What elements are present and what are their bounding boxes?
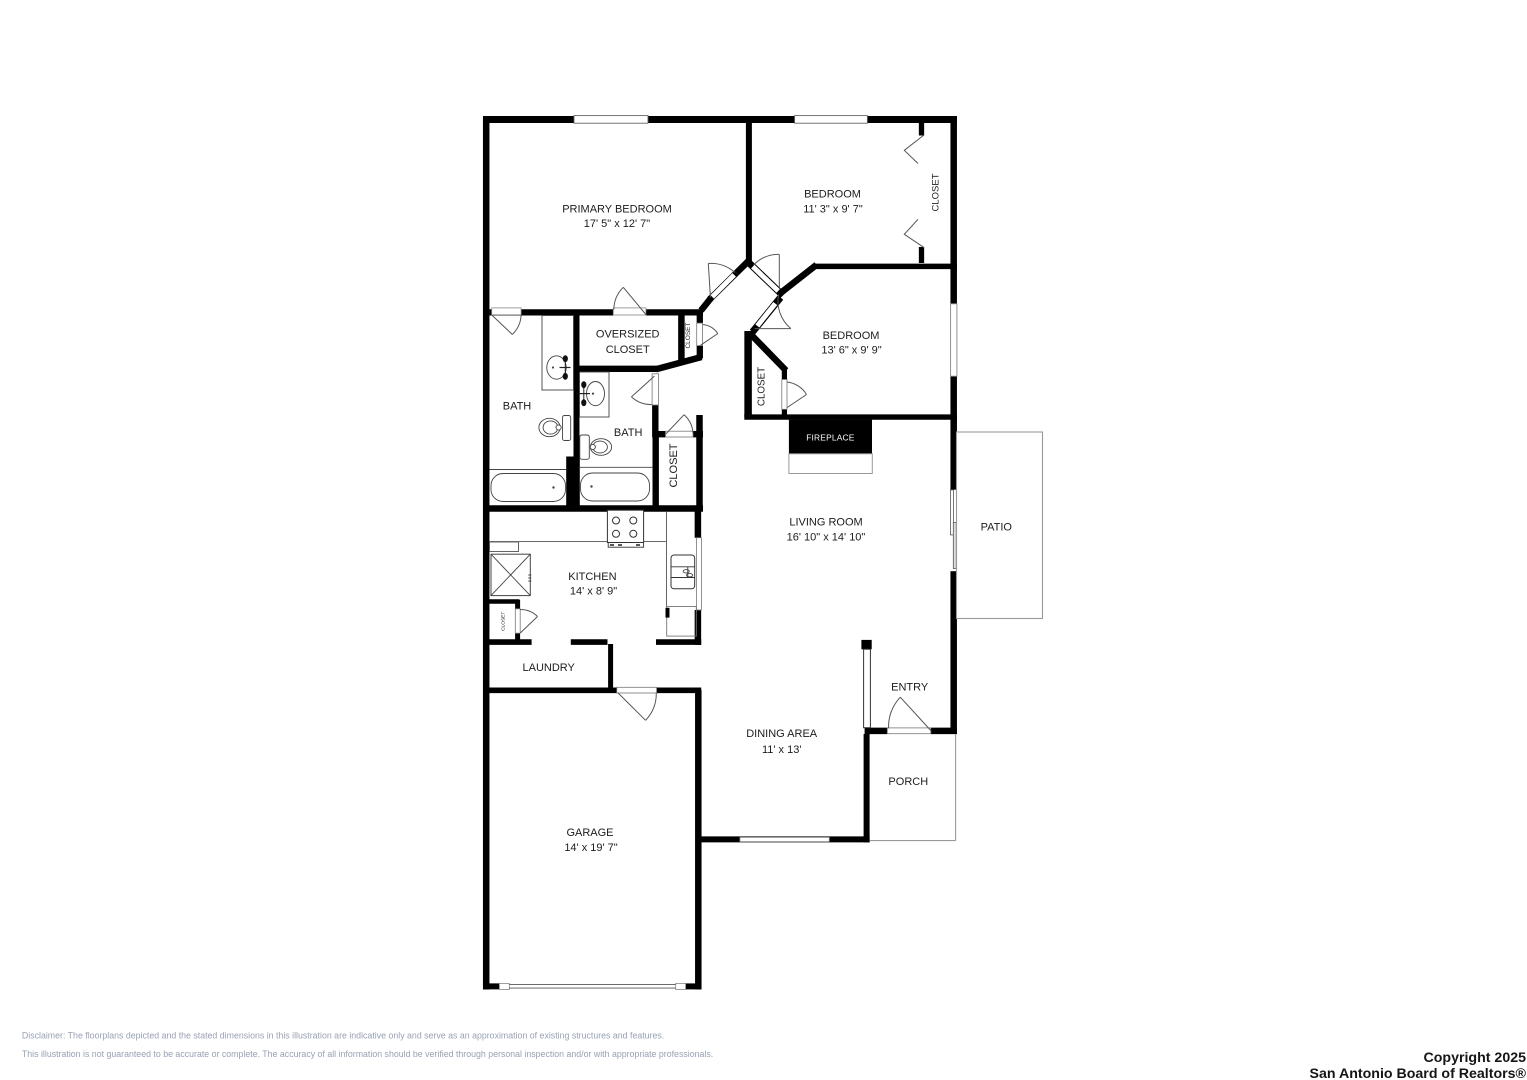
svg-text:CLOSET: CLOSET xyxy=(931,173,942,211)
svg-text:DINING AREA: DINING AREA xyxy=(746,728,818,740)
svg-text:CLOSET: CLOSET xyxy=(685,322,692,348)
svg-text:BEDROOM: BEDROOM xyxy=(823,330,880,342)
svg-text:17' 5" x 12' 7": 17' 5" x 12' 7" xyxy=(584,218,651,230)
svg-text:13' 6" x 9' 9": 13' 6" x 9' 9" xyxy=(821,345,881,357)
svg-text:CLOSET: CLOSET xyxy=(668,443,680,487)
svg-text:ENTRY: ENTRY xyxy=(891,681,929,693)
svg-text:LIVING ROOM: LIVING ROOM xyxy=(789,516,862,528)
svg-text:11' x 13': 11' x 13' xyxy=(762,744,801,756)
svg-text:OVERSIZED: OVERSIZED xyxy=(596,329,660,341)
svg-text:Copyright 2025: Copyright 2025 xyxy=(1424,1050,1527,1066)
svg-text:BATH: BATH xyxy=(503,400,532,412)
svg-text:16' 10" x 14' 10": 16' 10" x 14' 10" xyxy=(787,532,866,544)
svg-text:This illustration is not guara: This illustration is not guaranteed to b… xyxy=(22,1049,713,1059)
svg-text:CLOSET: CLOSET xyxy=(756,367,767,406)
svg-text:14' x 8' 9": 14' x 8' 9" xyxy=(570,586,617,598)
svg-text:Disclaimer: The floorplans dep: Disclaimer: The floorplans depicted and … xyxy=(22,1030,664,1040)
svg-text:PORCH: PORCH xyxy=(888,776,928,788)
svg-text:BEDROOM: BEDROOM xyxy=(804,189,861,201)
svg-text:11' 3" x 9' 7": 11' 3" x 9' 7" xyxy=(803,203,863,215)
svg-text:PATIO: PATIO xyxy=(981,522,1013,534)
svg-text:CLOSET: CLOSET xyxy=(606,344,650,356)
svg-text:PRIMARY BEDROOM: PRIMARY BEDROOM xyxy=(562,204,672,216)
svg-text:14' x 19' 7": 14' x 19' 7" xyxy=(564,842,617,854)
svg-text:FIREPLACE: FIREPLACE xyxy=(806,433,855,443)
svg-text:CLOSET: CLOSET xyxy=(500,612,506,631)
svg-text:KITCHEN: KITCHEN xyxy=(568,571,616,583)
svg-text:LAUNDRY: LAUNDRY xyxy=(523,662,576,674)
svg-text:San Antonio Board of Realtors®: San Antonio Board of Realtors® xyxy=(1310,1066,1527,1080)
svg-text:BATH: BATH xyxy=(614,427,643,439)
svg-text:GARAGE: GARAGE xyxy=(566,827,613,839)
